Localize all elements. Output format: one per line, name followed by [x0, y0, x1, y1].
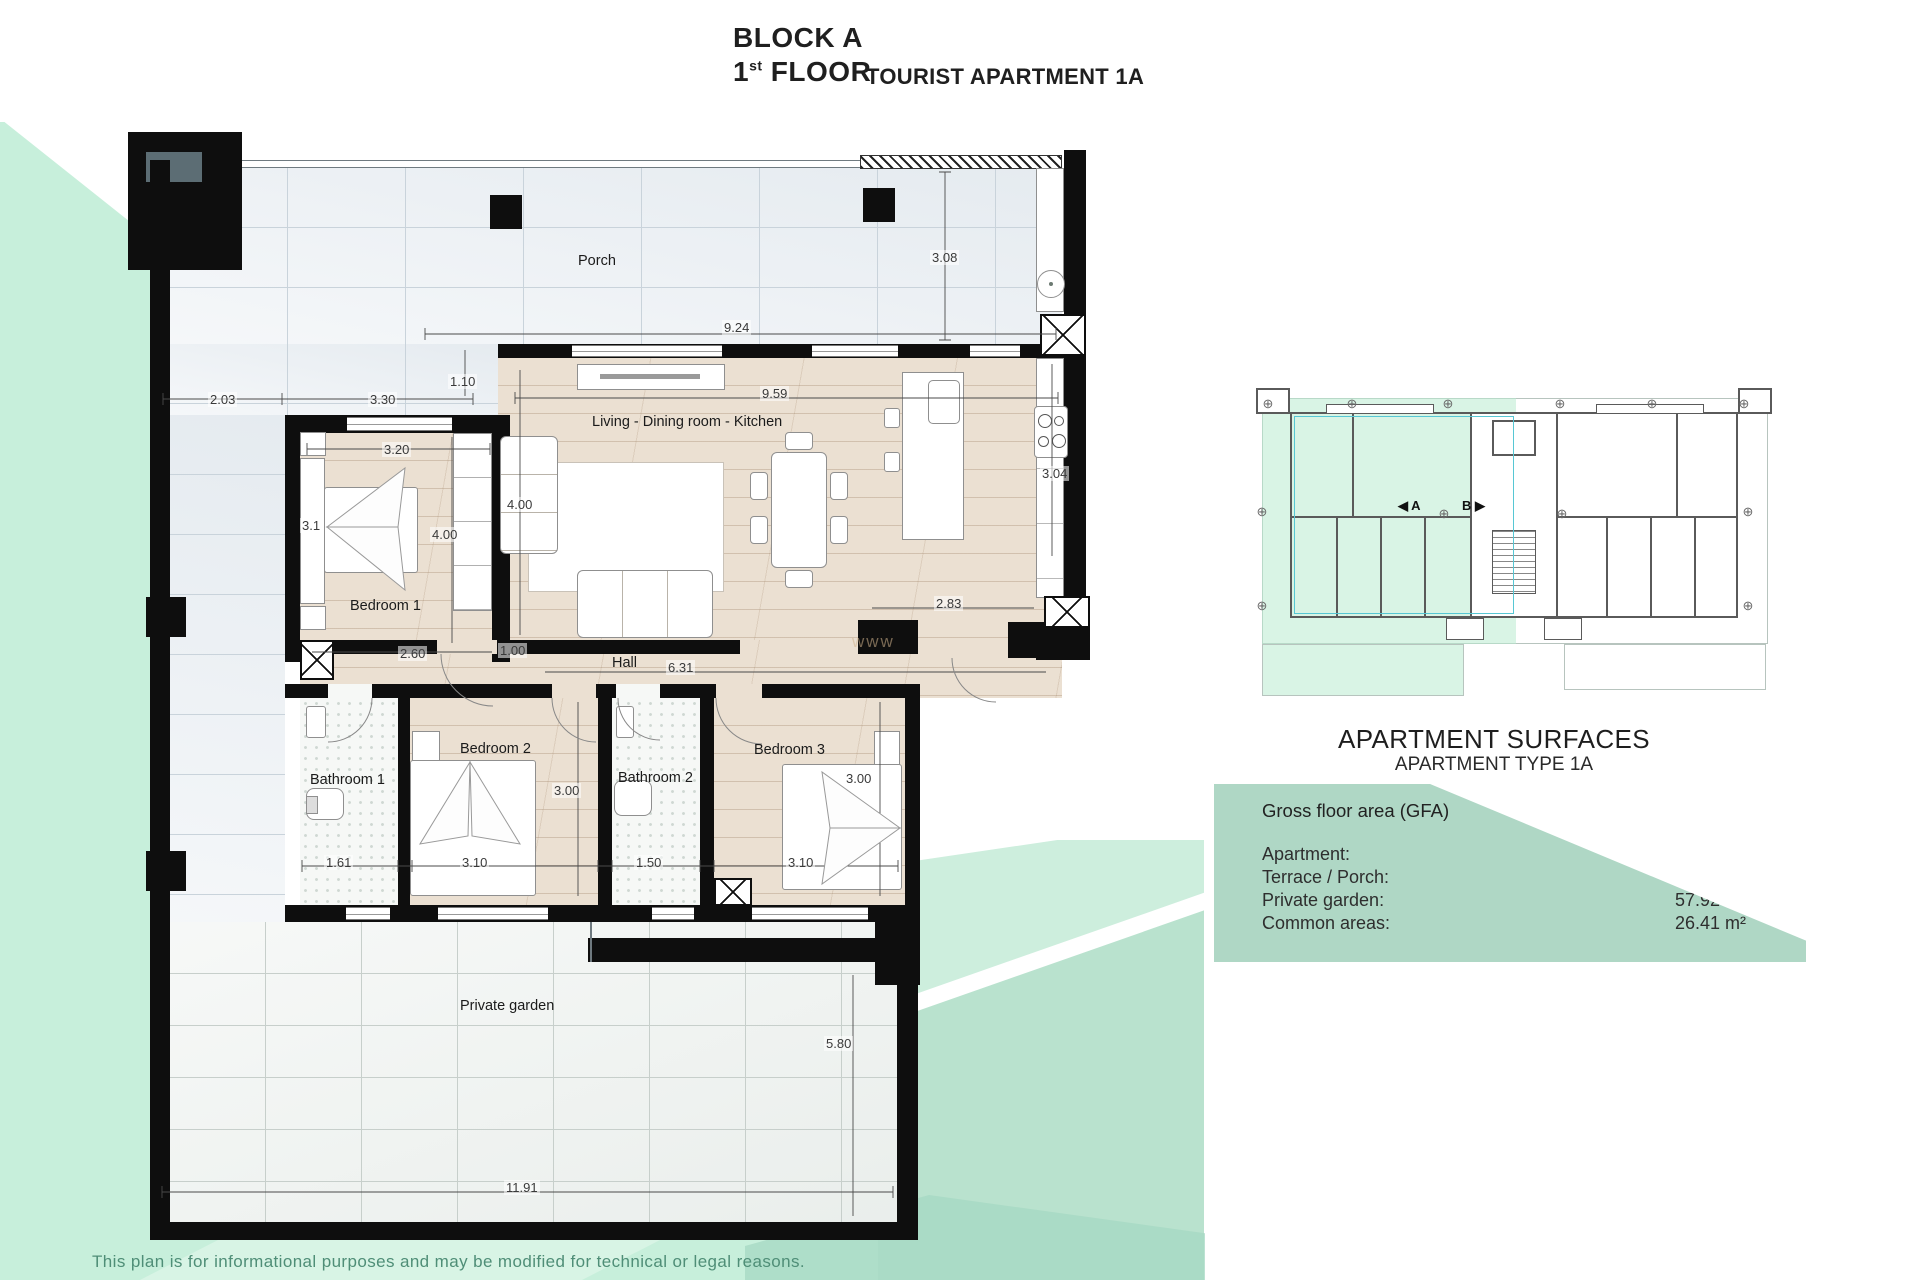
kitchen-bottom-chunk	[1036, 628, 1090, 660]
mini-part-top-right	[1676, 412, 1678, 516]
surface-row-label: Common areas:	[1262, 913, 1390, 934]
dimension-label: 3.04	[1040, 466, 1069, 481]
surfaces-panel: Gross floor area (GFA) Apartment:97.47 m…	[1214, 784, 1806, 962]
room-label: Private garden	[460, 998, 554, 1014]
island-sink	[928, 380, 960, 424]
water-heater	[1037, 270, 1065, 298]
grid-marker-icon: ⊕	[1739, 396, 1750, 412]
sheet-title: BLOCK A 1st FLOOR	[733, 22, 871, 88]
terrace-step-wall	[588, 938, 918, 962]
dimension-label: 3.00	[552, 783, 581, 798]
hall-bottom-wall	[285, 684, 920, 698]
bed2-bath2-wall	[598, 698, 612, 922]
porch-floor	[170, 168, 1062, 344]
room-label: Bedroom 1	[350, 598, 421, 614]
chair-left-2	[750, 516, 768, 544]
surface-row: Apartment:97.47 m²	[1262, 844, 1778, 866]
porch-floor-left-strip	[170, 415, 285, 935]
tv	[600, 374, 700, 379]
dimension-label: 3.20	[382, 442, 411, 457]
porch-railing-hatch	[860, 155, 1062, 169]
floor-plan-sheet: BLOCK A 1st FLOOR TOURIST APARTMENT 1A	[0, 0, 1920, 1280]
shaft-top-right	[1040, 314, 1086, 356]
surface-row-label: Apartment:	[1262, 844, 1350, 865]
grid-marker-icon: ⊕	[1555, 396, 1566, 412]
grid-marker-icon: ⊕	[1557, 506, 1568, 522]
bedroom1-wardrobe	[453, 433, 492, 611]
mini-part-6	[1694, 518, 1696, 616]
stove-burner-3	[1038, 436, 1049, 447]
garden-floor	[170, 922, 897, 1222]
sofa-2	[577, 570, 713, 638]
bed1-nightstand-top	[300, 432, 326, 456]
surface-row-value: 26.41 m²	[1675, 913, 1746, 934]
sofa-1	[500, 436, 558, 554]
dimension-label: 5.80	[824, 1036, 853, 1051]
bath2-window	[652, 907, 694, 920]
grid-marker-icon: ⊕	[1347, 396, 1358, 412]
grid-marker-icon: ⊕	[1443, 396, 1454, 412]
chair-bottom	[785, 570, 813, 588]
chair-left-1	[750, 472, 768, 500]
surfaces-heading: APARTMENT SURFACES	[1214, 724, 1774, 755]
mini-entry-stub-1	[1446, 618, 1484, 640]
floor-title: 1st FLOOR	[733, 56, 871, 88]
terrace-step-line	[590, 922, 592, 962]
bath1-toilet-tank	[306, 796, 318, 814]
living-window-2	[812, 345, 898, 357]
stove-burner-4	[1052, 434, 1066, 448]
shaft-bedroom3	[714, 878, 752, 906]
room-label: Porch	[578, 253, 616, 269]
porch-column-2	[863, 188, 895, 222]
dimension-label: 3.1	[300, 518, 322, 533]
bed3-mattress	[782, 764, 902, 890]
chair-right-1	[830, 472, 848, 500]
right-wall	[1064, 150, 1086, 630]
grid-marker-icon: ⊕	[1743, 598, 1754, 614]
dimension-label: 1.00	[498, 643, 527, 658]
grid-marker-icon: ⊕	[1257, 598, 1268, 614]
chair-right-2	[830, 516, 848, 544]
apartment-title: TOURIST APARTMENT 1A	[866, 64, 1144, 90]
bed2-pillow	[412, 731, 440, 761]
dining-table	[771, 452, 827, 568]
dimension-label: 2.03	[208, 392, 237, 407]
porch-column-1	[490, 195, 522, 229]
surface-row: Terrace / Porch:86.84 m²	[1262, 867, 1778, 889]
bedroom1-door-gap	[437, 640, 497, 654]
shaft-bedroom1	[300, 640, 334, 680]
dimension-label: 6.31	[666, 660, 695, 675]
grid-marker-icon: ⊕	[1743, 504, 1754, 520]
left-pilaster-1	[146, 597, 186, 637]
mini-unit-a-highlight	[1294, 416, 1514, 614]
dimension-label: 11.91	[504, 1180, 540, 1195]
outer-left-wall	[150, 160, 170, 1238]
dimension-label: 3.08	[930, 250, 959, 265]
dimension-label: 4.00	[505, 497, 534, 512]
surface-row: Private garden:57.92 m²	[1262, 890, 1778, 912]
surfaces-subheading: APARTMENT TYPE 1A	[1214, 754, 1774, 776]
bath2-door-gap	[616, 684, 660, 698]
living-window-3	[970, 345, 1020, 357]
watermark: www	[852, 632, 895, 652]
room-label: Living - Dining room - Kitchen	[592, 414, 782, 430]
surface-row-value: 57.92 m²	[1675, 890, 1746, 911]
bath2-sink	[616, 706, 634, 738]
surface-row-value: 97.47 m²	[1675, 844, 1746, 865]
grid-marker-icon: ⊕	[1647, 396, 1658, 412]
mini-entry-stub-2	[1544, 618, 1582, 640]
shaft-kitchen	[1044, 596, 1090, 628]
gfa-title: Gross floor area (GFA)	[1262, 800, 1449, 822]
grid-marker-icon: ⊕	[1257, 504, 1268, 520]
dimension-label: 3.30	[368, 392, 397, 407]
dimension-label: 3.10	[786, 855, 815, 870]
bedroom1-left-wall	[285, 415, 300, 662]
surface-row-label: Terrace / Porch:	[1262, 867, 1389, 888]
surface-row-label: Private garden:	[1262, 890, 1384, 911]
dimension-label: 1.50	[634, 855, 663, 870]
grid-marker-icon: ⊕	[1263, 396, 1274, 412]
mini-part-4	[1606, 518, 1608, 616]
dimension-label: 3.10	[460, 855, 489, 870]
dimension-label: 9.59	[760, 386, 789, 401]
garden-right-wall	[897, 985, 918, 1222]
dimension-label: 1.61	[324, 855, 353, 870]
chair-top	[785, 432, 813, 450]
room-label: Hall	[612, 655, 637, 671]
bed2-door-gap	[552, 684, 596, 698]
surface-row-value: 86.84 m²	[1675, 867, 1746, 888]
bath2-bed3-wall	[700, 698, 714, 922]
dimension-label: 9.24	[722, 320, 751, 335]
stove-burner-2	[1054, 416, 1064, 426]
left-pilaster-2	[146, 851, 186, 891]
bath1-bed2-wall	[398, 698, 410, 922]
bed3-pillow	[874, 731, 900, 765]
surface-row: Common areas:26.41 m²	[1262, 913, 1778, 935]
living-window-1	[572, 345, 722, 357]
mini-part-5	[1650, 518, 1652, 616]
bed2-mattress	[410, 760, 536, 896]
footer-disclaimer: This plan is for informational purposes …	[92, 1252, 805, 1272]
bath1-window	[346, 907, 390, 920]
dimension-label: 1.10	[448, 374, 477, 389]
stool-1	[884, 408, 900, 428]
block-title: BLOCK A	[733, 22, 871, 54]
bed3-right-wall	[905, 698, 920, 922]
dimension-label: 2.83	[934, 596, 963, 611]
bed1-nightstand-bottom	[300, 606, 326, 630]
room-label: Bathroom 1	[310, 772, 385, 788]
dimension-label: 2.60	[398, 646, 427, 661]
bedroom3-window	[752, 907, 868, 920]
room-label: Bedroom 3	[754, 742, 825, 758]
bed3-door-gap	[716, 684, 762, 698]
mini-unit-a-label: ◀ A	[1398, 498, 1421, 514]
mini-balcony-left	[1326, 404, 1434, 414]
stool-2	[884, 452, 900, 472]
bedroom2-window	[438, 907, 548, 920]
bedroom1-window	[347, 417, 452, 431]
mini-unit-b-label: B ▶	[1462, 498, 1485, 514]
bath1-sink	[306, 706, 326, 738]
dimension-label: 3.00	[844, 771, 873, 786]
room-label: Bedroom 2	[460, 741, 531, 757]
garden-bottom-wall	[150, 1222, 918, 1240]
mini-garden-b	[1564, 644, 1766, 690]
bed1-mattress	[324, 487, 418, 573]
mini-garden-a	[1262, 644, 1464, 696]
stove	[1034, 406, 1068, 458]
room-label: Bathroom 2	[618, 770, 693, 786]
bath1-door-gap	[328, 684, 372, 698]
deco-left-green-band	[0, 122, 150, 1280]
dimension-label: 4.00	[430, 527, 459, 542]
grid-marker-icon: ⊕	[1439, 506, 1450, 522]
stove-burner-1	[1038, 414, 1052, 428]
